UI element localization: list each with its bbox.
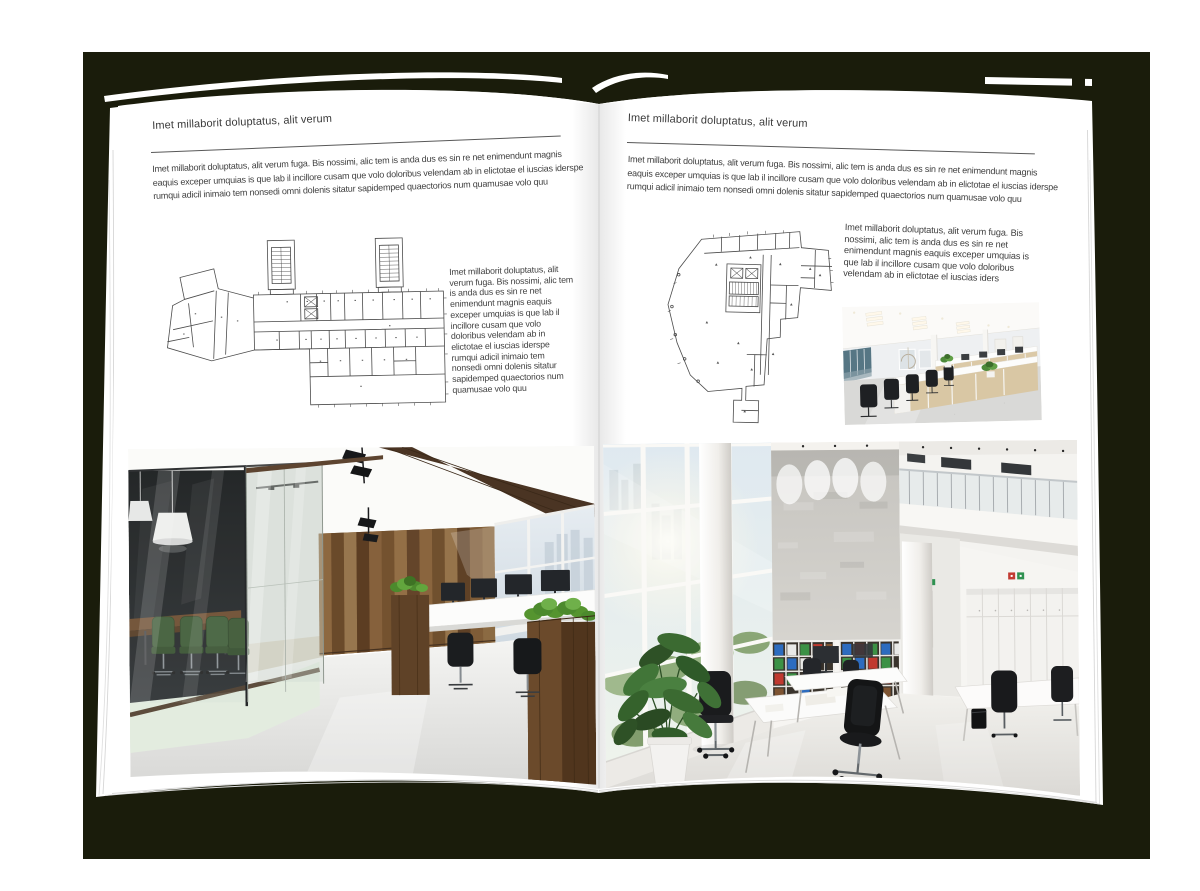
right-page-photo-small xyxy=(842,302,1042,425)
left-page-side-text: Imet millaborit doluptatus, alit verum f… xyxy=(449,264,577,396)
right-floor-plan xyxy=(645,222,846,427)
left-photo-illustration xyxy=(128,446,596,789)
right-page-photo-large xyxy=(603,440,1080,800)
magazine-spread-mockup: Imet millaborit doluptatus, alit verum I… xyxy=(0,0,1200,891)
glass-walls xyxy=(128,463,324,707)
plan-room-marks xyxy=(183,298,433,390)
left-floor-plan xyxy=(157,224,451,420)
right-page-side-text: Imet millaborit doluptatus, alit verum f… xyxy=(843,222,1043,287)
right-photo-illustration xyxy=(603,440,1080,800)
left-page-photo xyxy=(128,446,596,789)
concrete-wall xyxy=(771,441,901,640)
small-photo-illustration xyxy=(842,302,1042,425)
